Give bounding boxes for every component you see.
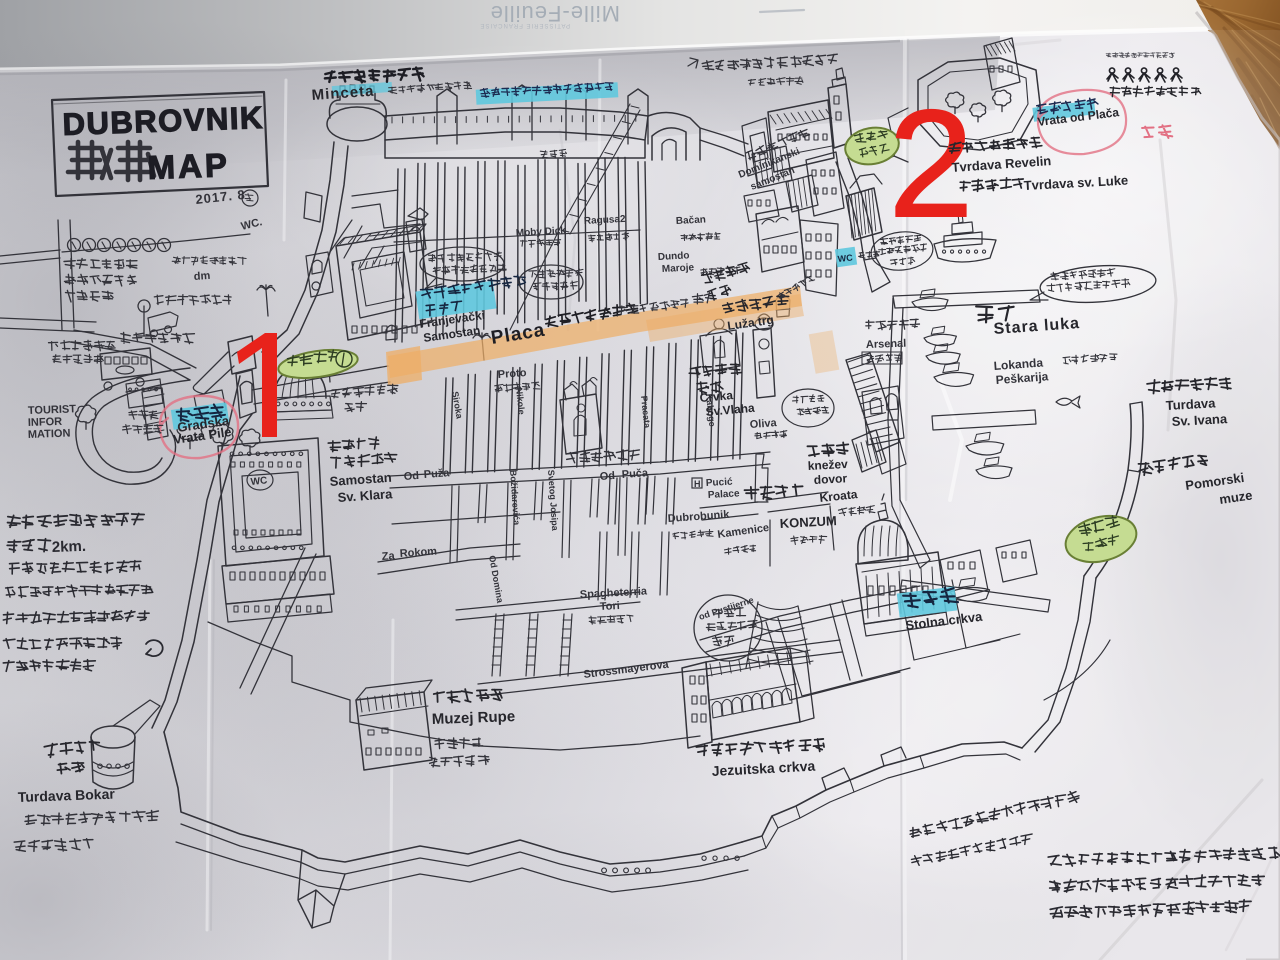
svg-text:MATION: MATION (28, 428, 71, 441)
svg-text:Za: Za (381, 550, 396, 563)
svg-text:H: H (694, 479, 701, 489)
svg-text:DUBROVNIK: DUBROVNIK (62, 100, 264, 142)
svg-text:Bačan: Bačan (676, 214, 707, 227)
svg-text:Turdava: Turdava (1165, 395, 1216, 413)
svg-text:dm: dm (193, 270, 211, 283)
svg-text:Muzej Rupe: Muzej Rupe (432, 708, 516, 728)
svg-text:Tori: Tori (600, 600, 621, 613)
svg-text:WC: WC (837, 252, 853, 264)
svg-text:dovor: dovor (813, 471, 847, 487)
svg-text:Proto: Proto (497, 367, 527, 381)
svg-text:Turdava Bokar: Turdava Bokar (18, 786, 116, 805)
svg-text:Pucić: Pucić (706, 477, 734, 489)
svg-text:2km.: 2km. (52, 538, 87, 556)
svg-text:MAP: MAP (147, 146, 231, 186)
svg-text:Puča: Puča (621, 467, 649, 481)
svg-text:Dundo: Dundo (658, 250, 690, 263)
svg-text:Od: Od (599, 470, 615, 483)
svg-text:Ragusa2: Ragusa2 (584, 214, 627, 227)
svg-text:Sv. Ivana: Sv. Ivana (1171, 411, 1228, 429)
svg-text:PATISSERIE FRANCAISE: PATISSERIE FRANCAISE (480, 22, 570, 28)
svg-text:Puža: Puža (423, 467, 450, 481)
svg-text:TOURIST: TOURIST (28, 403, 77, 417)
svg-text:Arsenal: Arsenal (866, 338, 907, 351)
svg-text:Oliva: Oliva (749, 417, 778, 431)
svg-text:Palace: Palace (708, 488, 741, 501)
svg-text:Od: Od (403, 470, 419, 483)
svg-text:Maroje: Maroje (662, 262, 695, 275)
svg-text:WC: WC (250, 475, 268, 488)
svg-text:KONZUM: KONZUM (779, 513, 837, 531)
